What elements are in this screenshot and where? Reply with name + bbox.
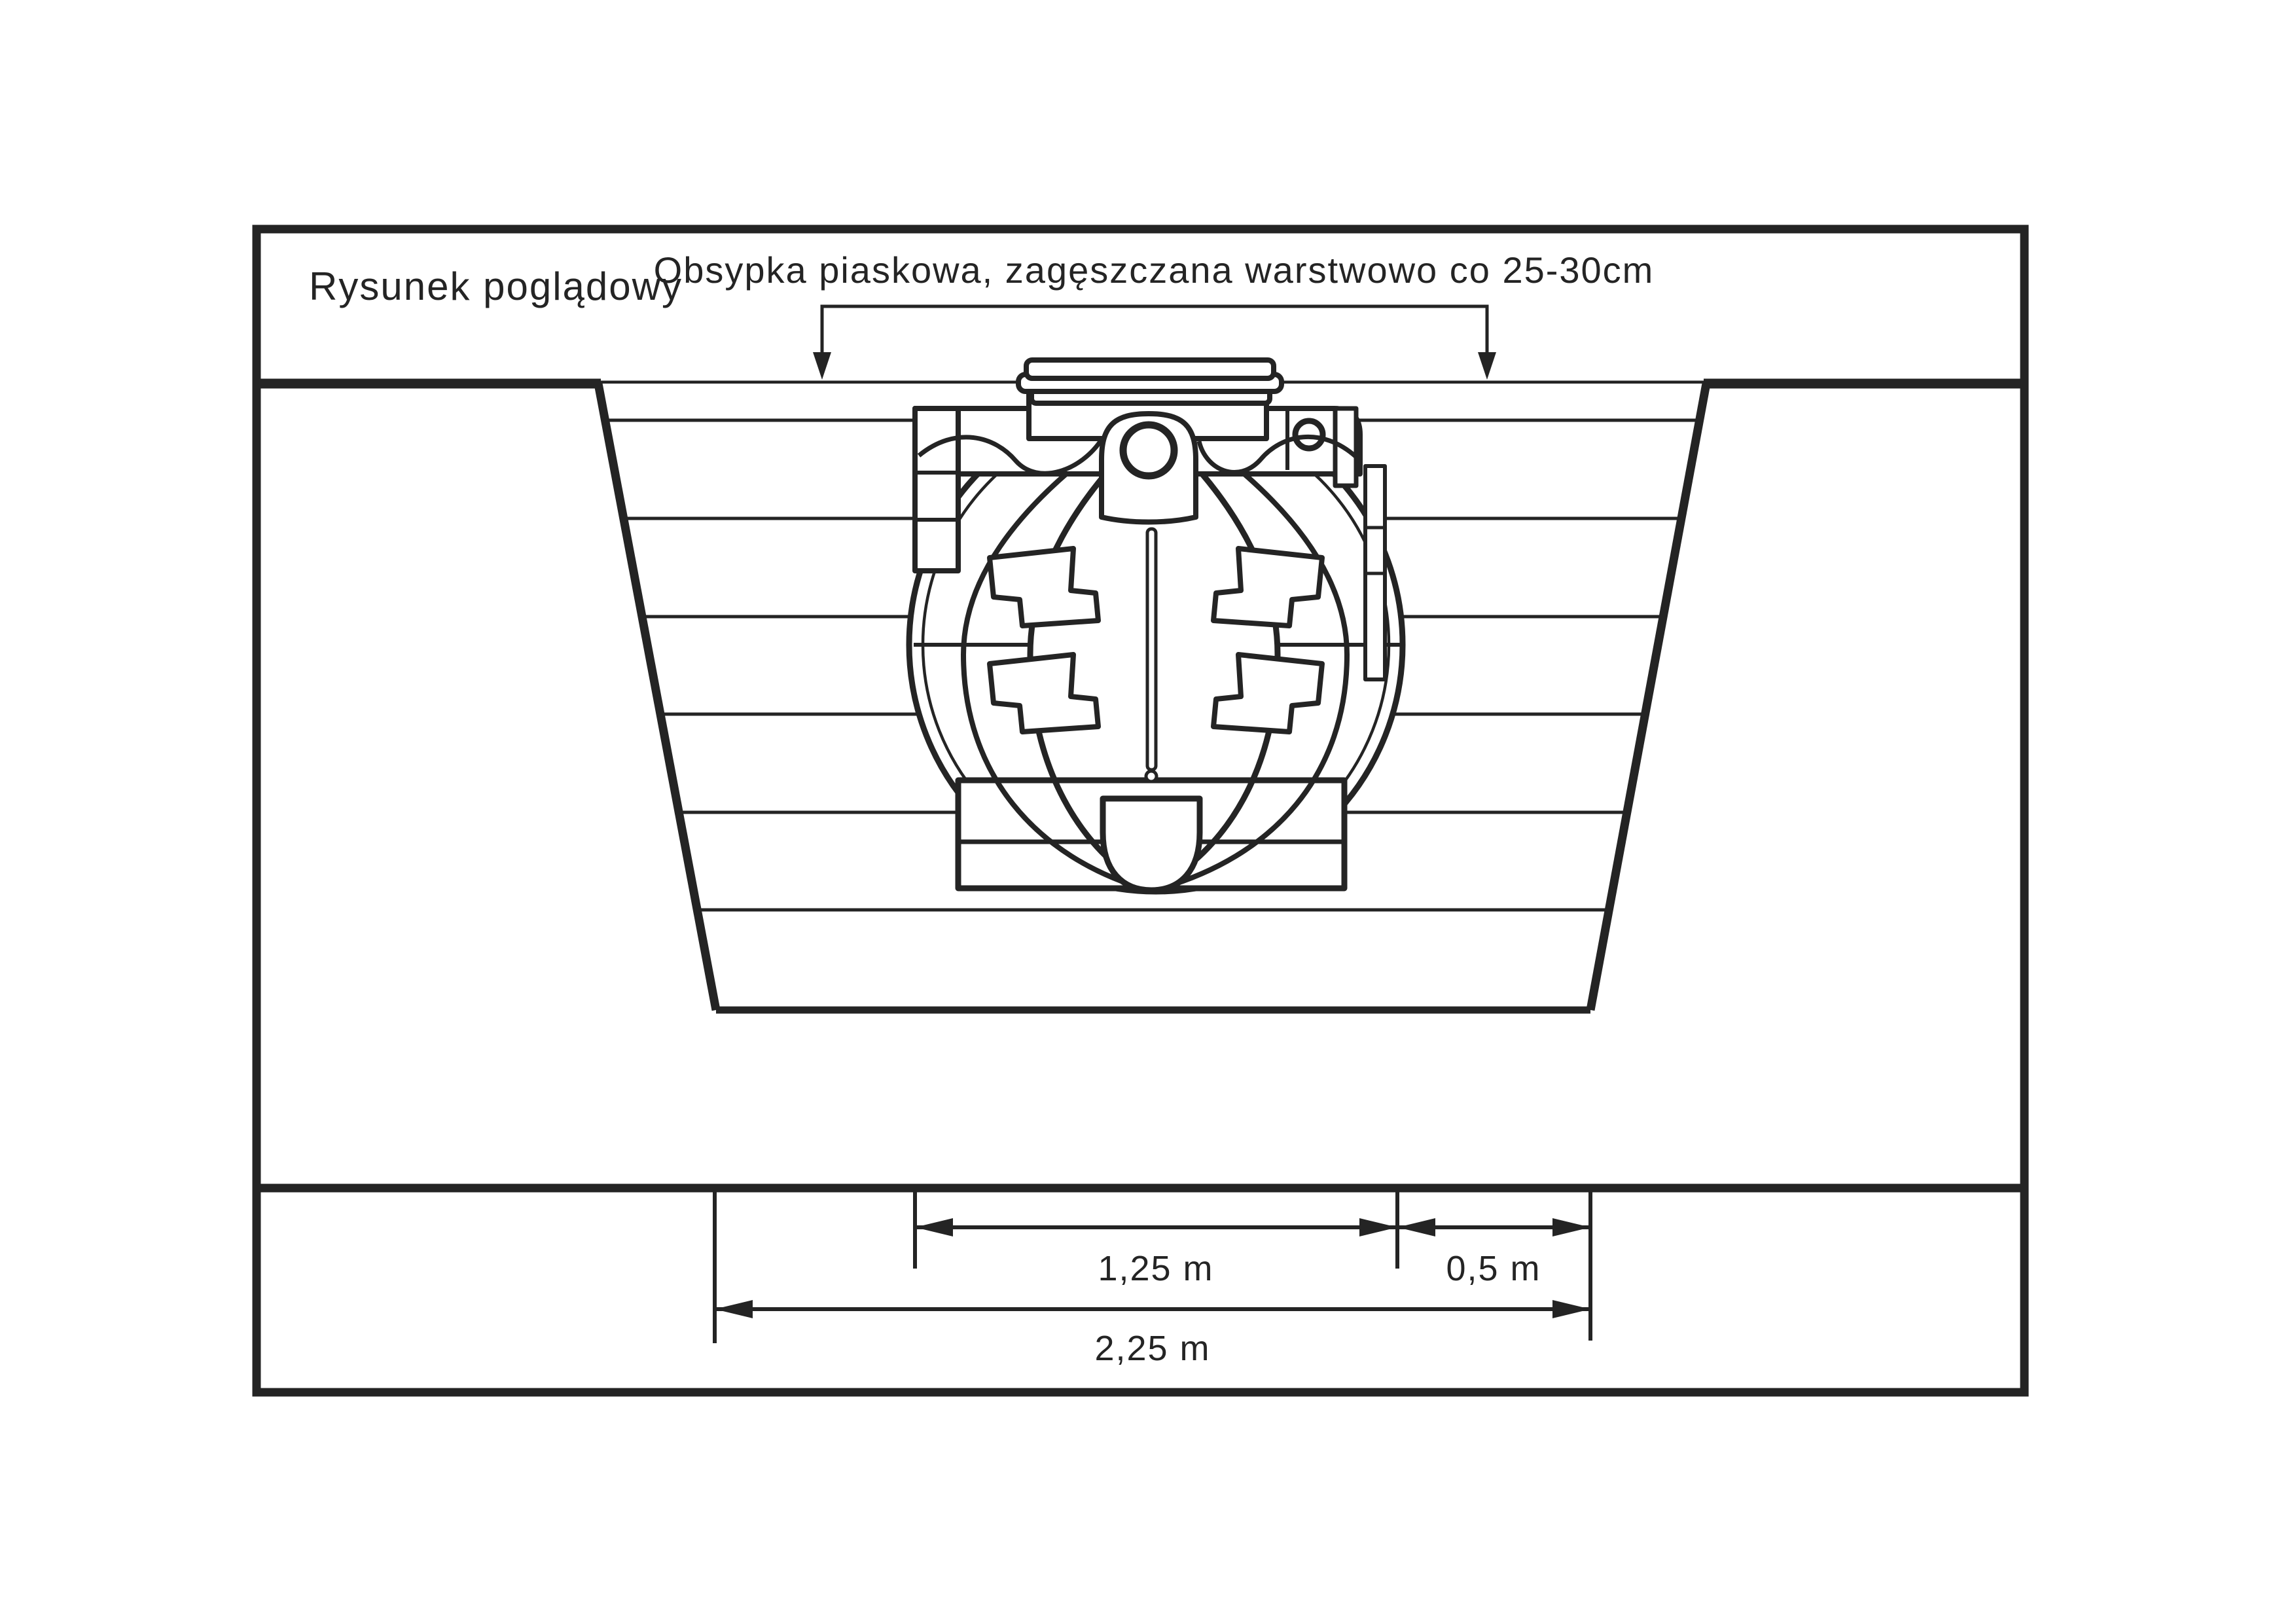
- bottom-cup: [1103, 799, 1200, 890]
- drawing-page: 1,25 m 0,5 m 2,25 m Obsypka piaskowa, za…: [0, 0, 2296, 1624]
- tank: [909, 360, 1405, 892]
- lid-top-cap: [1026, 360, 1274, 378]
- dim-label-tank-width: 1,25 m: [1098, 1249, 1213, 1288]
- collar-left-flange: [915, 408, 958, 571]
- inspection-opening: [1123, 425, 1174, 476]
- backfill-annotation: Obsypka piaskowa, zagęszczana warstwowo …: [654, 249, 1655, 291]
- center-weld-line: [1146, 529, 1157, 782]
- manhole-lid: [1018, 360, 1282, 403]
- drawing-title: Rysunek poglądowy: [309, 264, 683, 308]
- dim-label-pit-bottom-width: 2,25 m: [1094, 1329, 1210, 1368]
- dim-label-side-clearance: 0,5 m: [1446, 1249, 1541, 1288]
